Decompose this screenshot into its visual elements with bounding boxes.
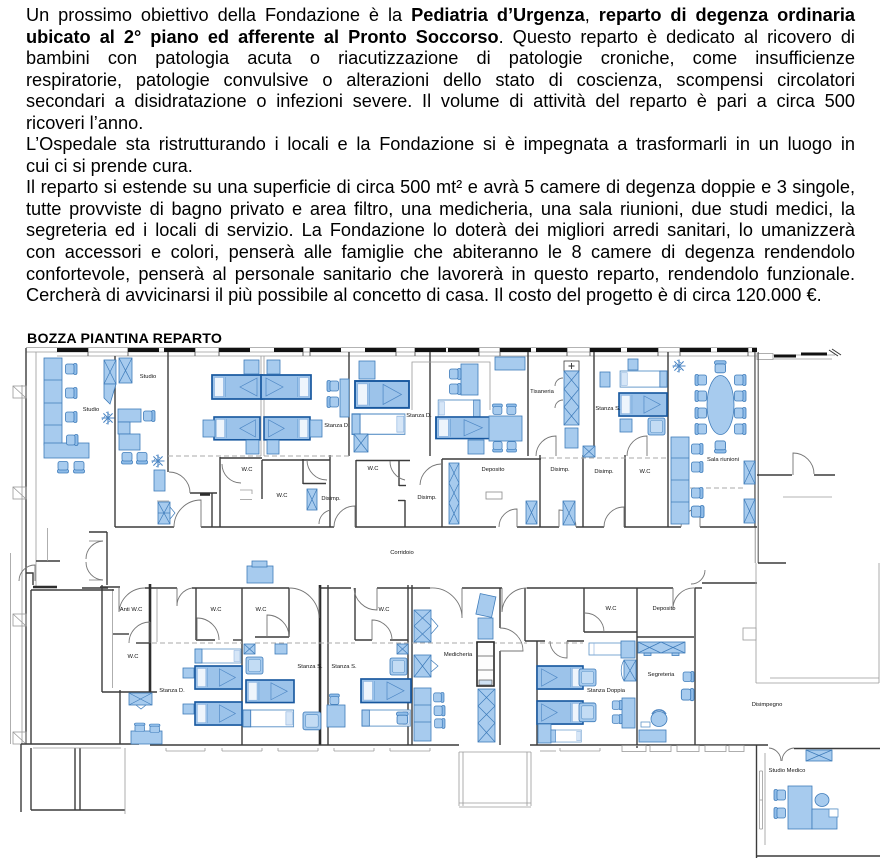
svg-text:W.C: W.C (368, 466, 379, 472)
svg-text:Disimpegno: Disimpegno (752, 702, 783, 708)
svg-text:Deposito: Deposito (653, 606, 676, 612)
svg-text:Studio Medico: Studio Medico (769, 768, 806, 774)
svg-text:Segreteria: Segreteria (648, 672, 676, 678)
svg-text:Disimp.: Disimp. (417, 495, 437, 501)
svg-text:W.C: W.C (606, 606, 617, 612)
svg-text:Anti W.C: Anti W.C (120, 607, 143, 613)
svg-text:Studio: Studio (83, 407, 99, 413)
svg-text:Stanza S.: Stanza S. (595, 406, 621, 412)
svg-text:Disimp.: Disimp. (321, 496, 341, 502)
svg-text:W.C: W.C (256, 607, 267, 613)
svg-text:Stanza S.: Stanza S. (297, 664, 323, 670)
svg-text:Stanza S.: Stanza S. (331, 664, 357, 670)
svg-text:Corridoio: Corridoio (390, 550, 414, 556)
svg-text:W.C: W.C (379, 607, 390, 613)
svg-text:W.C: W.C (242, 467, 253, 473)
svg-text:Stanza Doppia: Stanza Doppia (587, 688, 626, 694)
svg-text:W.C: W.C (211, 607, 222, 613)
svg-text:Medicheria: Medicheria (444, 652, 473, 658)
svg-text:Disimp.: Disimp. (594, 469, 614, 475)
svg-text:Tisaneria: Tisaneria (530, 389, 554, 395)
svg-text:Stanza D.: Stanza D. (159, 688, 185, 694)
svg-text:Deposito: Deposito (482, 467, 505, 473)
svg-text:Disimp.: Disimp. (550, 467, 570, 473)
svg-text:Stanza D.: Stanza D. (324, 423, 350, 429)
svg-text:W.C: W.C (640, 469, 651, 475)
svg-text:W.C: W.C (277, 493, 288, 499)
svg-text:Stanza D.: Stanza D. (406, 413, 432, 419)
svg-text:Sala riunioni: Sala riunioni (707, 457, 739, 463)
svg-text:W.C: W.C (128, 654, 139, 660)
svg-text:Studio: Studio (140, 374, 156, 380)
